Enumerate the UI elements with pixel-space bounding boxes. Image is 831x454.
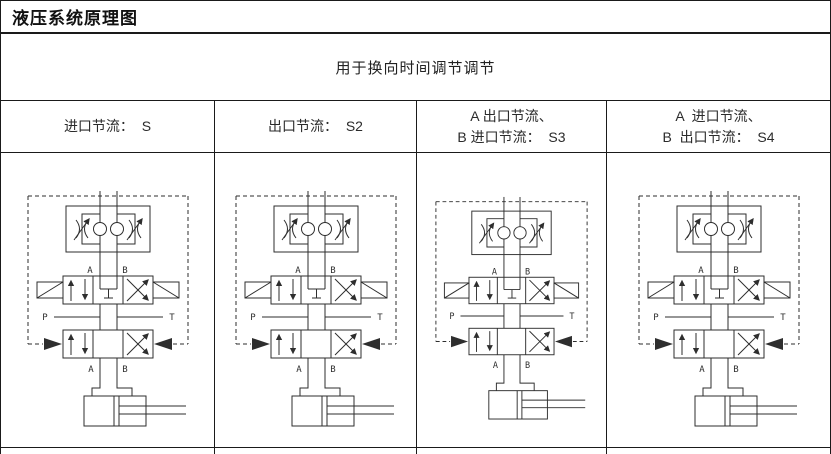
pilot-arrow-icon [362, 338, 380, 350]
pilot-arrow-icon [154, 338, 172, 350]
directional-valve-pilot [44, 330, 172, 358]
hydraulic-schematic: A B P T [417, 158, 606, 440]
throttle-check-valve-block [677, 206, 761, 252]
check-valve-ball-icon [704, 223, 717, 236]
directional-valve-solenoid [37, 276, 179, 304]
port-a-label-bottom: A [493, 361, 498, 371]
directional-valve-solenoid [444, 277, 578, 303]
port-a-label-bottom: A [88, 365, 94, 375]
header-line: A 出口节流、 [470, 106, 552, 127]
page-title: 液压系统原理图 [12, 4, 138, 29]
pilot-arrow-icon [451, 336, 468, 347]
diagram-row: A B P T [1, 153, 830, 448]
port-p-label: P [250, 313, 256, 323]
diagram-cell-s1: A B P T [1, 153, 215, 447]
hydraulic-cylinder [84, 396, 186, 426]
header-line: 进口节流： S [64, 116, 151, 137]
stub-cell [607, 448, 830, 454]
port-a-label: A [492, 267, 497, 277]
subtitle-bar: 用于换向时间调节调节 [1, 34, 830, 101]
hydraulic-schematic: A B P T [216, 158, 416, 440]
subplate-boundary-dashed [28, 196, 188, 344]
port-b-label: B [330, 266, 335, 276]
port-p-label: P [653, 313, 659, 323]
port-t-label: T [377, 313, 383, 323]
hydraulic-cylinder [695, 396, 797, 426]
check-valve-ball-icon [721, 223, 734, 236]
port-b-label: B [733, 266, 738, 276]
stub-cell [417, 448, 607, 454]
subplate-boundary-dashed [639, 196, 799, 344]
port-b-label-bottom: B [733, 365, 738, 375]
pilot-arrow-icon [555, 336, 572, 347]
port-a-label: A [295, 266, 301, 276]
stub-cell [215, 448, 417, 454]
check-valve-ball-icon [110, 223, 123, 236]
port-p-label: P [42, 313, 48, 323]
directional-valve-solenoid [245, 276, 387, 304]
check-valve-ball-icon [514, 227, 526, 239]
subplate-boundary-dashed [236, 196, 396, 344]
directional-valve-solenoid [648, 276, 790, 304]
header-cell-s1: 进口节流： S [1, 101, 215, 152]
pilot-arrow-icon [765, 338, 783, 350]
hydraulic-cylinder [489, 391, 585, 419]
header-line: B 进口节流： S3 [457, 127, 565, 148]
port-b-label: B [525, 267, 530, 277]
hydraulic-schematic-sheet: 液压系统原理图 用于换向时间调节调节 进口节流： S 出口节流： S2 A 出口… [0, 0, 831, 454]
port-t-label: T [569, 312, 574, 322]
check-valve-ball-icon [318, 223, 331, 236]
header-line: A 进口节流、 [675, 106, 761, 127]
diagram-cell-s2: A B P T [215, 153, 417, 447]
port-a-label: A [698, 266, 704, 276]
hydraulic-schematic: A B P T [8, 158, 208, 440]
port-b-label-bottom: B [122, 365, 127, 375]
stub-cell [1, 448, 215, 454]
port-a-label: A [87, 266, 93, 276]
port-t-label: T [780, 313, 786, 323]
check-valve-ball-icon [498, 227, 510, 239]
pilot-arrow-icon [655, 338, 673, 350]
subplate-boundary-dashed [436, 202, 587, 342]
next-row-stub [1, 448, 830, 454]
port-a-label-bottom: A [296, 365, 302, 375]
port-b-label-bottom: B [525, 361, 530, 371]
pilot-arrow-icon [44, 338, 62, 350]
port-p-label: P [449, 312, 454, 322]
check-valve-ball-icon [93, 223, 106, 236]
directional-valve-pilot [655, 330, 783, 358]
diagram-cell-s4: A B P T [607, 153, 830, 447]
title-bar: 液压系统原理图 [1, 1, 830, 34]
port-b-label: B [122, 266, 127, 276]
subtitle-text: 用于换向时间调节调节 [335, 57, 495, 78]
port-t-label: T [169, 313, 175, 323]
header-row: 进口节流： S 出口节流： S2 A 出口节流、 B 进口节流： S3 A 进口… [1, 101, 830, 153]
throttle-check-valve-block [66, 206, 150, 252]
port-a-label-bottom: A [699, 365, 705, 375]
port-b-label-bottom: B [330, 365, 335, 375]
check-valve-ball-icon [301, 223, 314, 236]
directional-valve-pilot [451, 328, 572, 354]
header-line: 出口节流： S2 [268, 116, 363, 137]
hydraulic-schematic: A B P T [619, 158, 819, 440]
directional-valve-pilot [252, 330, 380, 358]
header-cell-s3: A 出口节流、 B 进口节流： S3 [417, 101, 607, 152]
header-cell-s4: A 进口节流、 B 出口节流： S4 [607, 101, 830, 152]
hydraulic-cylinder [292, 396, 394, 426]
throttle-check-valve-block [472, 211, 551, 254]
diagram-cell-s3: A B P T [417, 153, 607, 447]
header-cell-s2: 出口节流： S2 [215, 101, 417, 152]
header-line: B 出口节流： S4 [662, 127, 774, 148]
pilot-arrow-icon [252, 338, 270, 350]
throttle-check-valve-block [274, 206, 358, 252]
